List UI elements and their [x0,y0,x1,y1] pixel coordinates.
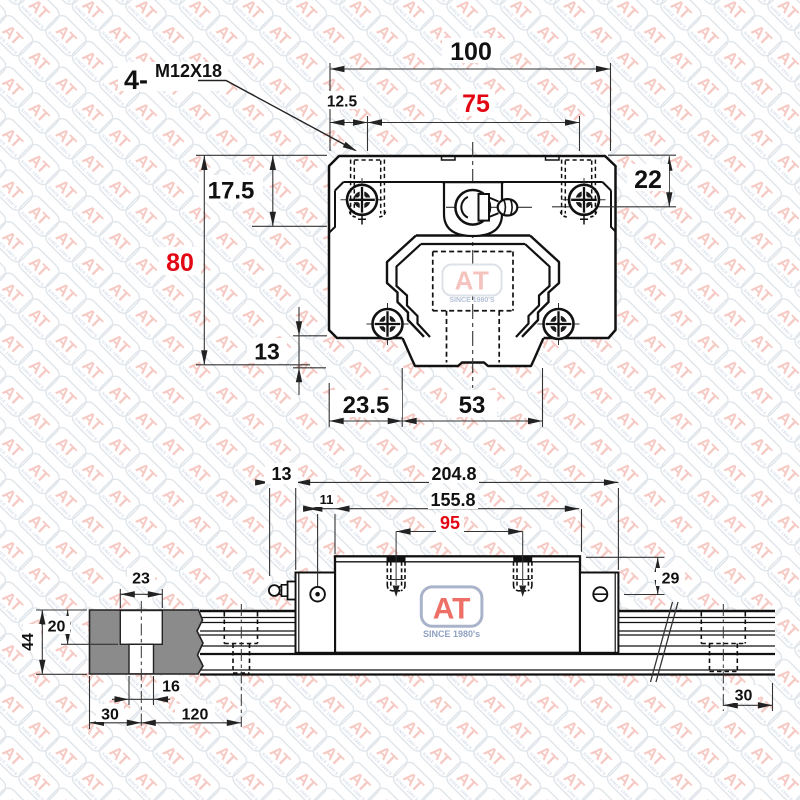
svg-text:75: 75 [462,90,490,118]
svg-text:30: 30 [735,688,753,705]
svg-text:SINCE 1980's: SINCE 1980's [423,629,480,639]
svg-text:AT: AT [455,266,491,296]
svg-text:M12X18: M12X18 [155,61,222,81]
svg-text:29: 29 [662,571,680,588]
svg-text:30: 30 [101,707,119,724]
svg-text:155.8: 155.8 [430,490,475,510]
svg-text:11: 11 [320,492,334,507]
svg-text:22: 22 [634,166,662,194]
svg-text:100: 100 [450,38,492,66]
svg-text:13: 13 [271,464,291,484]
svg-text:17.5: 17.5 [208,178,255,205]
svg-text:16: 16 [162,679,180,696]
svg-text:20: 20 [48,619,66,636]
svg-text:AT: AT [433,593,471,626]
svg-text:120: 120 [182,707,209,724]
svg-text:204.8: 204.8 [431,464,476,484]
svg-text:12.5: 12.5 [327,94,358,111]
svg-text:80: 80 [166,249,194,277]
svg-text:53: 53 [459,392,486,419]
svg-text:4-: 4- [124,65,148,95]
svg-text:23.5: 23.5 [343,392,390,419]
svg-text:23: 23 [132,571,150,588]
svg-text:13: 13 [254,339,280,365]
svg-text:95: 95 [440,513,460,533]
svg-text:44: 44 [20,633,37,651]
svg-text:SINCE 1980'S: SINCE 1980'S [449,297,495,304]
